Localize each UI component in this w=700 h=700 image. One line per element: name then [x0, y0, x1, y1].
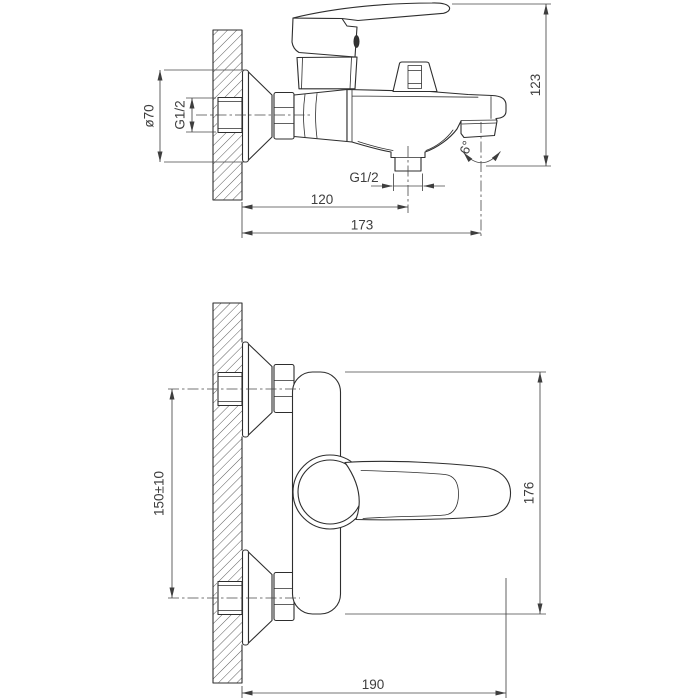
dim-label-inlet-thread: G1/2: [173, 100, 188, 129]
side-cartridge-neck: [297, 57, 357, 89]
handle-lever-front: [345, 461, 511, 520]
side-faucet-body: [347, 90, 506, 172]
bath-mixer-technical-drawing: ø70 G1/2 123 6° G1/2: [0, 0, 700, 700]
dim-wall-to-shower-outlet: 120: [242, 192, 408, 238]
body-barrel: [347, 90, 506, 172]
handle-cap: [292, 18, 357, 57]
front-dimensions: 150±10 176 190: [152, 372, 547, 698]
dim-wall-to-spout: 173: [242, 218, 481, 234]
upper-escutcheon-flange: [243, 342, 249, 437]
dim-label-wall-to-shower-outlet: 120: [311, 192, 334, 207]
side-escutcheon: [243, 70, 295, 162]
escutcheon-cone: [249, 72, 273, 160]
side-handle: [292, 3, 450, 57]
dim-inlet-spacing: 150±10: [152, 389, 173, 598]
dim-inlet-thread: G1/2: [173, 98, 217, 132]
lower-hex-nut: [274, 573, 294, 621]
dim-label-wall-to-handle-end: 190: [362, 677, 385, 692]
dim-label-body-height: 176: [522, 482, 537, 505]
dim-label-flange-diameter: ø70: [142, 104, 157, 127]
dim-label-inlet-spacing: 150±10: [152, 471, 167, 516]
diverter-knob-body: [393, 62, 437, 92]
front-view: 150±10 176 190: [152, 303, 547, 698]
adapter-body: [294, 90, 347, 142]
side-diverter-knob: [393, 62, 437, 92]
dim-label-overall-height: 123: [528, 74, 543, 97]
front-wall-section: [213, 303, 242, 683]
dim-label-shower-thread: G1/2: [349, 170, 378, 185]
hex-nut-facets: [274, 381, 294, 605]
neck-body: [297, 57, 357, 89]
dim-label-wall-to-spout: 173: [351, 218, 374, 233]
front-faucet-body: [293, 372, 511, 614]
dim-shower-thread: G1/2: [349, 170, 445, 191]
side-view: ø70 G1/2 123 6° G1/2: [142, 3, 552, 238]
dim-spout-angle: 6°: [457, 139, 501, 163]
upper-hex-nut: [274, 365, 294, 413]
handle-lever: [293, 3, 450, 21]
side-s-union-adapter: [294, 90, 347, 142]
dim-label-spout-angle: 6°: [457, 139, 476, 156]
technical-drawing-page: ø70 G1/2 123 6° G1/2: [0, 0, 700, 700]
lower-escutcheon-flange: [243, 550, 249, 645]
escutcheon-flange: [243, 70, 249, 162]
wall-hatching: [213, 303, 242, 683]
front-escutcheons: [243, 342, 295, 645]
connector-hex-nut: [274, 93, 294, 140]
handle-indicator-dot: [354, 36, 359, 48]
